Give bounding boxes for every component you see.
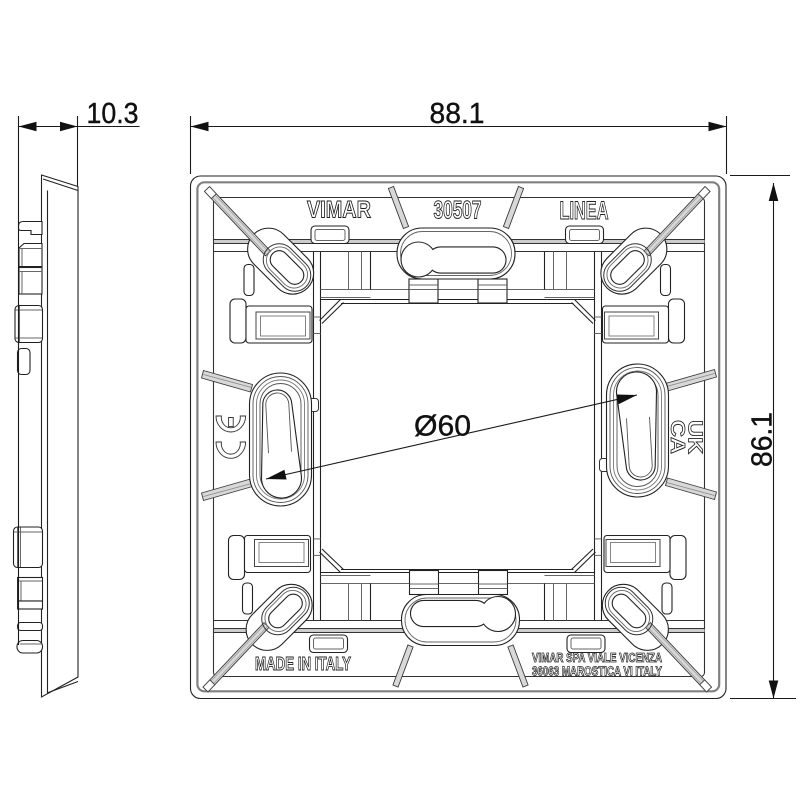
svg-text:88.1: 88.1	[430, 98, 485, 130]
svg-text:CA: CA	[666, 420, 688, 454]
svg-text:MADE IN ITALY: MADE IN ITALY	[255, 654, 351, 674]
svg-text:36063 MAROSTICA VI ITALY: 36063 MAROSTICA VI ITALY	[532, 664, 662, 679]
svg-text:Ø60: Ø60	[414, 411, 471, 443]
svg-text:LINEA: LINEA	[560, 197, 609, 225]
svg-text:10.3: 10.3	[87, 98, 139, 130]
svg-text:30507: 30507	[434, 197, 482, 225]
svg-text:VIMAR: VIMAR	[307, 197, 371, 224]
svg-text:86.1: 86.1	[747, 412, 779, 467]
